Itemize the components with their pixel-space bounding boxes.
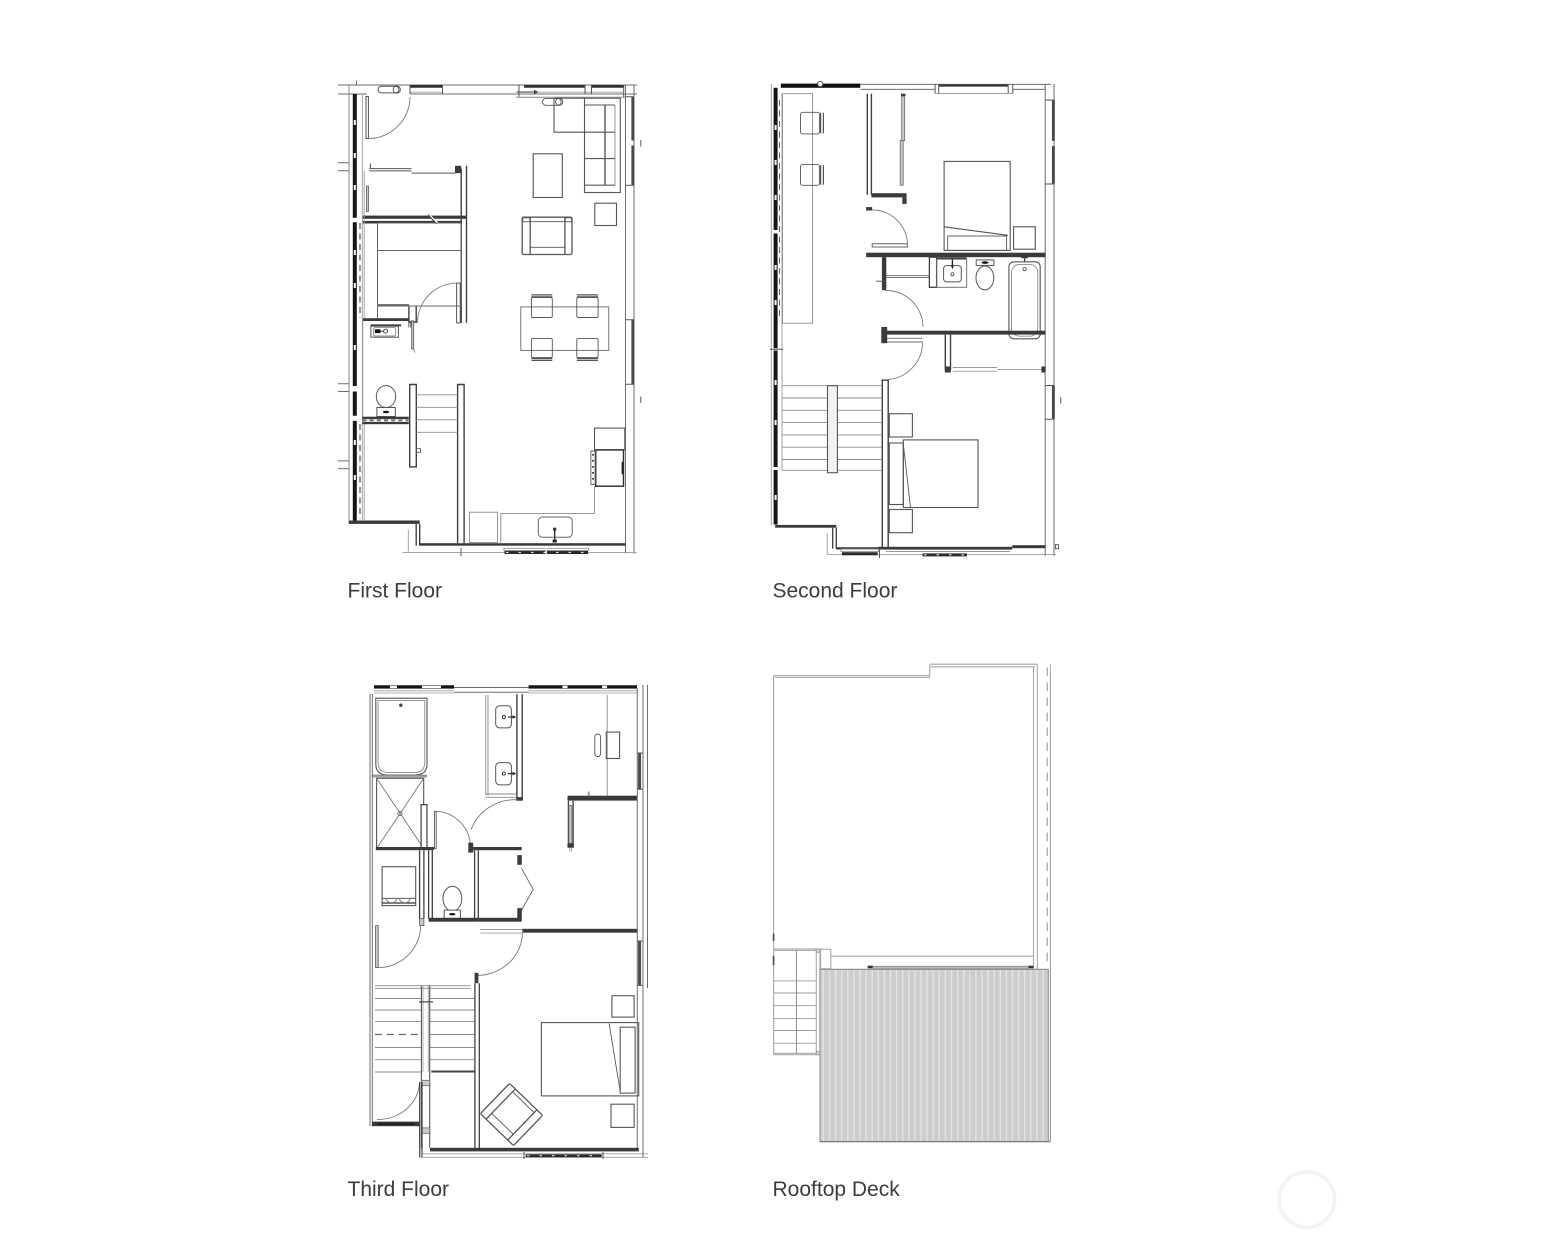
svg-text:Second Floor: Second Floor — [773, 579, 898, 602]
svg-text:First Floor: First Floor — [348, 579, 443, 602]
svg-text:Third Floor: Third Floor — [348, 1178, 450, 1201]
svg-text:Rooftop Deck: Rooftop Deck — [773, 1178, 901, 1201]
